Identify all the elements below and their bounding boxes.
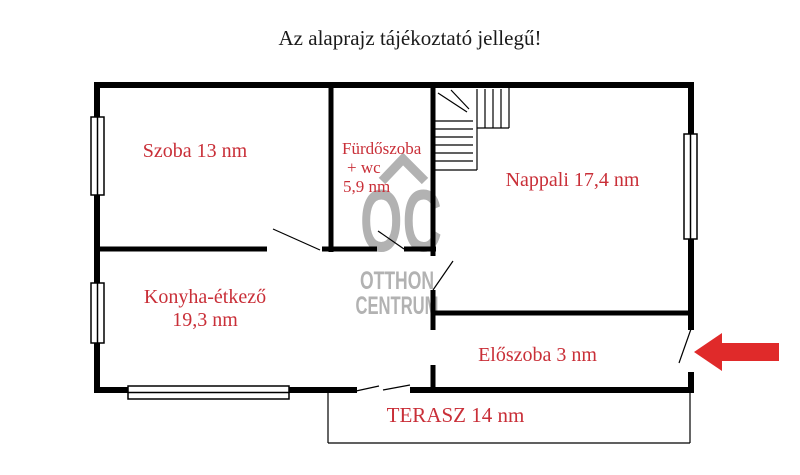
room-label-eloszoba: Előszoba 3 nm bbox=[455, 344, 620, 366]
door-swings bbox=[273, 229, 691, 391]
furdoszoba-line3: 5,9 nm bbox=[342, 177, 421, 196]
room-label-nappali: Nappali 17,4 nm bbox=[490, 169, 655, 191]
konyha-line1: Konyha-étkező bbox=[120, 286, 290, 309]
room-label-konyha: Konyha-étkező 19,3 nm bbox=[120, 286, 290, 332]
staircase bbox=[435, 86, 509, 170]
konyha-line2: 19,3 nm bbox=[120, 309, 290, 332]
room-label-terasz: TERASZ 14 nm bbox=[358, 404, 553, 426]
stair-winder bbox=[451, 90, 469, 109]
floor-plan-page: OC OTTHON CENTRUM bbox=[0, 0, 800, 475]
door-swing-entrance bbox=[679, 329, 691, 363]
door-swing-szoba bbox=[273, 229, 320, 250]
terrace-opening-mark bbox=[383, 385, 410, 390]
entrance-arrow-icon bbox=[694, 333, 779, 371]
watermark-name-line2: CENTRUM bbox=[356, 292, 439, 320]
furdoszoba-line1: Fürdőszoba bbox=[342, 139, 421, 158]
room-label-szoba: Szoba 13 nm bbox=[115, 140, 275, 162]
furdoszoba-line2: + wc bbox=[342, 158, 421, 177]
terrace-opening-mark bbox=[356, 386, 379, 391]
room-label-furdoszoba: Fürdőszoba + wc 5,9 nm bbox=[342, 139, 421, 196]
watermark-name-line1: OTTHON bbox=[360, 267, 434, 295]
disclaimer-title: Az alaprajz tájékoztató jellegű! bbox=[200, 26, 620, 51]
